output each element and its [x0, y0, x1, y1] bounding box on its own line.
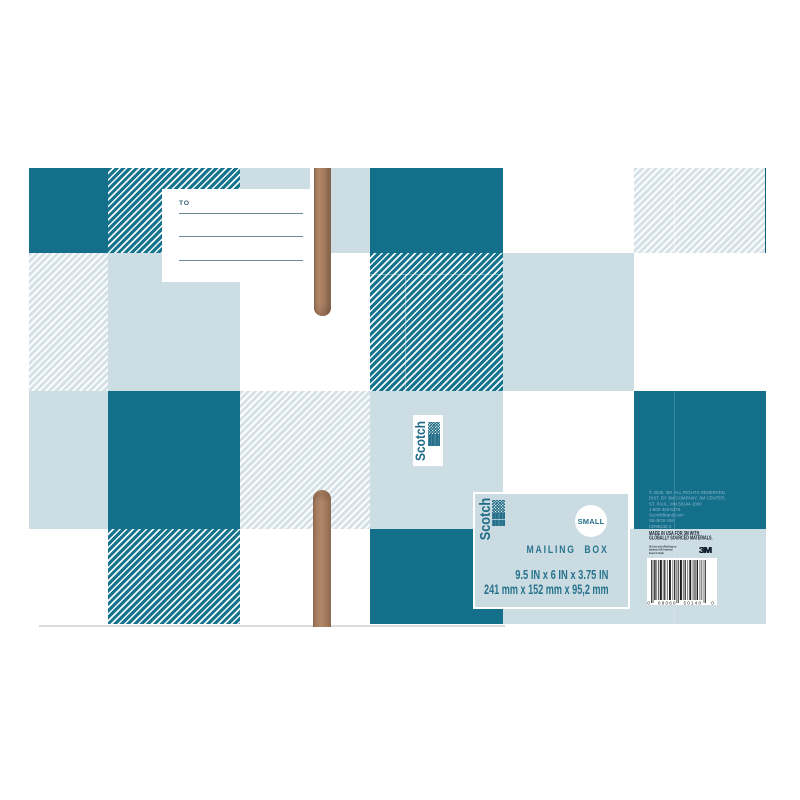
svg-text:0: 0 [647, 601, 650, 605]
svg-text:Scotch: Scotch [413, 421, 428, 461]
svg-text:6 8 0 6 0: 6 8 0 6 0 [658, 601, 676, 605]
svg-text:5 0 1 4 0: 5 0 1 4 0 [684, 601, 702, 605]
svg-text:0: 0 [711, 601, 714, 605]
